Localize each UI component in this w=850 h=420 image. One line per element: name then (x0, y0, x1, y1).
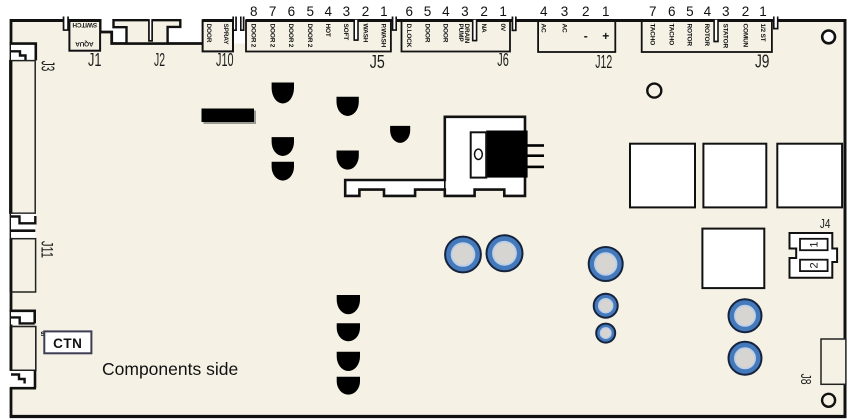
svg-text:AC: AC (540, 24, 547, 33)
svg-text:4: 4 (325, 4, 333, 19)
svg-text:0V: 0V (499, 24, 506, 32)
svg-text:J12: J12 (595, 52, 612, 72)
svg-text:J10: J10 (216, 50, 234, 70)
svg-text:AC: AC (560, 24, 567, 33)
svg-text:J8: J8 (797, 374, 814, 385)
svg-text:CTN: CTN (53, 336, 82, 351)
svg-text:J1: J1 (88, 50, 102, 70)
svg-text:D.LOCK: D.LOCK (405, 24, 412, 48)
svg-text:4: 4 (704, 4, 712, 19)
svg-text:4: 4 (540, 4, 548, 19)
svg-text:PUMP: PUMP (457, 24, 464, 43)
svg-text:J4: J4 (820, 216, 831, 231)
svg-text:DOOR 2: DOOR 2 (250, 24, 257, 48)
svg-text:+: + (602, 29, 609, 43)
svg-text:TACHO: TACHO (668, 24, 675, 46)
svg-text:6: 6 (288, 4, 296, 19)
svg-text:1/2 ST: 1/2 ST (759, 24, 766, 42)
svg-text:1: 1 (499, 4, 507, 19)
svg-text:J9: J9 (755, 52, 770, 72)
svg-text:WASH: WASH (361, 24, 368, 43)
svg-text:ROTOR: ROTOR (703, 24, 710, 47)
svg-text:2: 2 (480, 4, 488, 19)
svg-text:-: - (584, 29, 588, 43)
svg-text:DOOR 2: DOOR 2 (306, 24, 313, 48)
svg-text:STATOR: STATOR (722, 24, 729, 49)
svg-text:DOOR: DOOR (423, 24, 430, 43)
svg-text:2: 2 (582, 4, 590, 19)
svg-text:1: 1 (602, 4, 610, 19)
svg-text:7: 7 (269, 4, 277, 19)
svg-text:7: 7 (649, 4, 657, 19)
svg-text:3: 3 (561, 4, 569, 19)
svg-text:2: 2 (809, 262, 821, 268)
svg-text:Components side: Components side (102, 359, 238, 379)
svg-text:5: 5 (686, 4, 694, 19)
svg-text:2: 2 (742, 4, 750, 19)
svg-text:6: 6 (668, 4, 676, 19)
svg-text:3: 3 (343, 4, 351, 19)
svg-text:3: 3 (461, 4, 469, 19)
svg-text:COMUN: COMUN (741, 24, 748, 48)
svg-text:AQUA: AQUA (75, 40, 94, 47)
svg-text:J11: J11 (38, 241, 57, 258)
svg-text:DOOR: DOOR (442, 24, 449, 43)
svg-text:DOOR 2: DOOR 2 (268, 24, 275, 48)
svg-text:TACHO: TACHO (649, 24, 656, 46)
svg-text:5: 5 (424, 4, 432, 19)
svg-text:DOOR: DOOR (205, 24, 212, 43)
svg-text:2: 2 (362, 4, 370, 19)
svg-text:1: 1 (809, 241, 821, 247)
svg-text:4: 4 (442, 4, 450, 19)
svg-text:1: 1 (759, 4, 767, 19)
svg-text:J6: J6 (497, 50, 509, 70)
svg-text:J2: J2 (154, 50, 165, 70)
svg-text:J5: J5 (370, 52, 385, 72)
svg-text:NA: NA (480, 24, 487, 33)
svg-text:SOFT: SOFT (342, 24, 349, 41)
svg-text:J3: J3 (37, 61, 57, 72)
svg-text:3: 3 (722, 4, 730, 19)
svg-text:1: 1 (380, 4, 388, 19)
svg-text:DOOR 2: DOOR 2 (287, 24, 294, 48)
svg-text:HOT: HOT (324, 24, 331, 37)
svg-text:6: 6 (405, 4, 413, 19)
svg-text:SPRAY: SPRAY (222, 24, 229, 46)
svg-text:8: 8 (250, 4, 258, 19)
svg-text:ROTOR: ROTOR (686, 24, 693, 47)
svg-text:P.WASH: P.WASH (380, 24, 387, 48)
svg-text:5: 5 (306, 4, 314, 19)
